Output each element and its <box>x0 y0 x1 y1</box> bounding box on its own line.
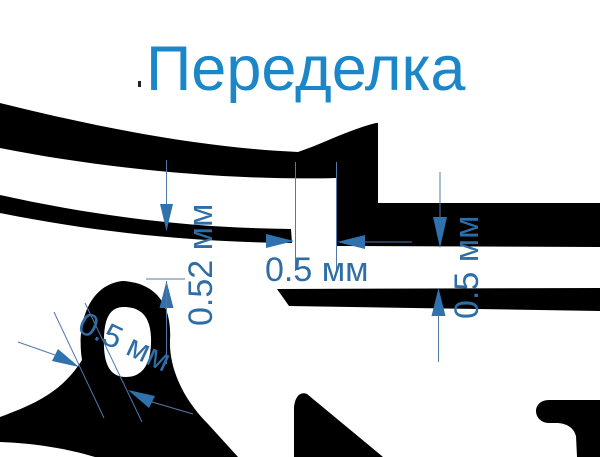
page-title: Переделка <box>146 34 466 104</box>
technical-drawing-page: 0.52 мм 0.5 мм 0.5 мм 0.5 мм <box>0 0 600 457</box>
bottom-right-hook-shape <box>536 400 600 457</box>
leader-line <box>18 342 55 355</box>
dimension-label-right: 0.5 мм <box>448 216 486 319</box>
lower-flange-shape <box>0 195 292 243</box>
dimension-label-left: 0.52 мм <box>182 204 220 326</box>
dimension-right-gap: 0.5 мм <box>432 172 487 362</box>
cross-section-drawing: 0.52 мм 0.5 мм 0.5 мм 0.5 мм <box>0 0 600 457</box>
bottom-triangle-shape <box>294 393 383 457</box>
dimension-label-slot: 0.5 мм <box>265 251 368 289</box>
arrow-down-right-icon <box>52 349 79 367</box>
artifact-mark <box>138 81 141 87</box>
